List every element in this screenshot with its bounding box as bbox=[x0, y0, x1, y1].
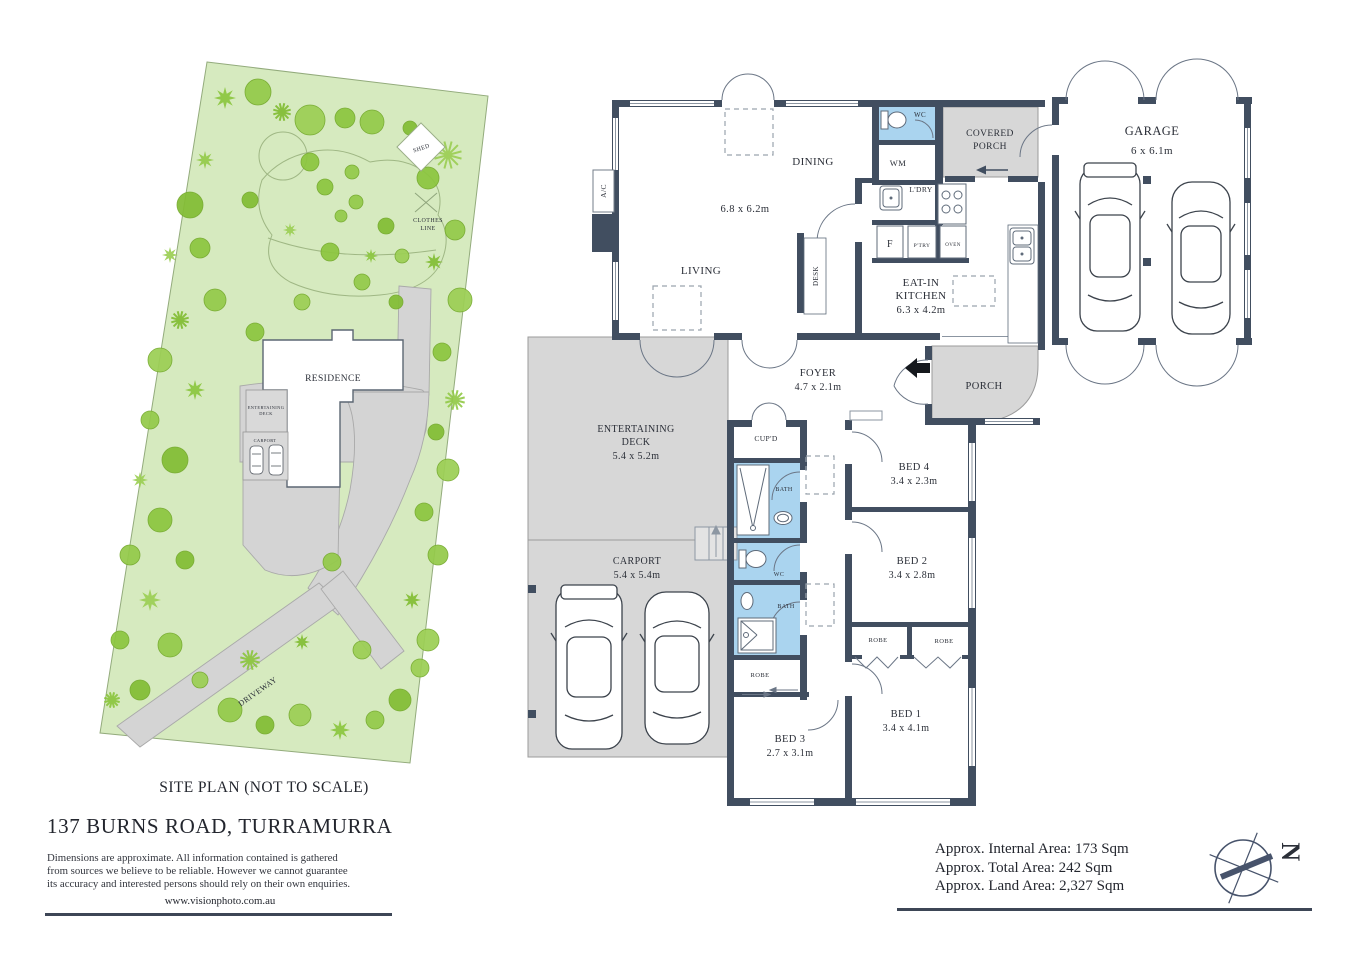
bed1-label: BED 1 bbox=[891, 709, 922, 720]
tree-icon bbox=[185, 380, 205, 400]
bed3-dim: 2.7 x 3.1m bbox=[767, 748, 814, 759]
right-divider bbox=[897, 908, 1312, 911]
tree-icon bbox=[411, 659, 429, 677]
bed4-dim: 3.4 x 2.3m bbox=[891, 476, 938, 487]
garage-dim: 6 x 6.1m bbox=[1131, 145, 1173, 157]
bath1-label: BATH bbox=[775, 487, 793, 493]
dining-label: DINING bbox=[792, 156, 834, 168]
tree-icon bbox=[415, 503, 433, 521]
tree-icon bbox=[130, 680, 150, 700]
foyer-label: FOYER bbox=[800, 368, 836, 379]
cooktop-icon bbox=[938, 184, 966, 224]
area-summary: Approx. Internal Area: 173 Sqm Approx. T… bbox=[935, 840, 1129, 896]
tree-icon bbox=[176, 551, 194, 569]
bed4-window-box bbox=[850, 411, 882, 420]
tree-icon bbox=[323, 553, 341, 571]
tree-icon bbox=[433, 343, 451, 361]
disclaimer-line3: its accuracy and interested persons shou… bbox=[47, 878, 393, 891]
bed3-label: BED 3 bbox=[775, 734, 806, 745]
internal-area: Approx. Internal Area: 173 Sqm bbox=[935, 840, 1129, 859]
tree-icon bbox=[345, 165, 359, 179]
disclaimer-line1: Dimensions are approximate. All informat… bbox=[47, 852, 393, 865]
tree-icon bbox=[428, 545, 448, 565]
wc-mid-label: WC bbox=[774, 572, 784, 578]
tree-icon bbox=[417, 629, 439, 651]
tree-icon bbox=[162, 247, 178, 263]
wm-label: WM bbox=[890, 158, 906, 168]
tree-icon bbox=[445, 220, 465, 240]
wc-top-label: WC bbox=[914, 111, 926, 119]
tree-icon bbox=[321, 243, 339, 261]
tree-icon bbox=[196, 151, 214, 169]
tree-icon bbox=[317, 179, 333, 195]
site-plan: RESIDENCE ENTERTAINING DECK CARPORT SHED… bbox=[100, 62, 488, 763]
tree-icon bbox=[395, 249, 409, 263]
tree-icon bbox=[192, 672, 208, 688]
deck-label2: DECK bbox=[622, 437, 651, 448]
garage-label: GARAGE bbox=[1125, 124, 1179, 138]
tree-icon bbox=[158, 633, 182, 657]
compass: N bbox=[1195, 819, 1305, 917]
tree-icon bbox=[294, 294, 310, 310]
carport-label: CARPORT bbox=[613, 556, 661, 567]
compass-north-label: N bbox=[1276, 842, 1305, 861]
ac-label: A/C bbox=[599, 184, 608, 198]
toilet-icon bbox=[881, 111, 888, 129]
left-divider bbox=[45, 913, 392, 916]
tree-icon bbox=[294, 634, 310, 650]
total-area: Approx. Total Area: 242 Sqm bbox=[935, 859, 1129, 878]
tree-icon bbox=[177, 192, 203, 218]
ldry-label: L'DRY bbox=[909, 185, 933, 194]
foyer-dim: 4.7 x 2.1m bbox=[795, 382, 842, 393]
cupd-label: CUP'D bbox=[754, 434, 778, 443]
toilet2-icon bbox=[739, 550, 746, 568]
site-carport-label: CARPORT bbox=[254, 438, 277, 443]
car-carport-2 bbox=[640, 592, 714, 744]
tree-icon bbox=[246, 323, 264, 341]
tree-icon bbox=[353, 641, 371, 659]
living-label: LIVING bbox=[681, 265, 721, 277]
tree-icon bbox=[190, 238, 210, 258]
site-deck-label1: ENTERTAINING bbox=[248, 405, 285, 410]
tree-icon bbox=[242, 192, 258, 208]
tree-icon bbox=[378, 218, 394, 234]
basin2-icon bbox=[741, 593, 753, 610]
car-garage-2 bbox=[1167, 182, 1235, 334]
living-dining-dim: 6.8 x 6.2m bbox=[721, 204, 770, 215]
property-address: 137 BURNS ROAD, TURRAMURRA bbox=[47, 814, 392, 839]
tree-icon bbox=[139, 589, 161, 611]
car-garage-1 bbox=[1075, 163, 1145, 331]
tree-icon bbox=[335, 210, 347, 222]
clothes-line-label1: CLOTHES bbox=[413, 218, 443, 224]
tree-icon bbox=[428, 424, 444, 440]
floorplan-page: RESIDENCE ENTERTAINING DECK CARPORT SHED… bbox=[0, 0, 1358, 960]
kitchen-dim: 6.3 x 4.2m bbox=[897, 305, 946, 316]
robe-b-label: ROBE bbox=[935, 638, 954, 645]
ptry-label: P'TRY bbox=[914, 243, 931, 249]
bed2-label: BED 2 bbox=[897, 556, 928, 567]
robe-bed3-label: ROBE bbox=[751, 672, 770, 679]
oven-label: OVEN bbox=[945, 243, 961, 248]
tree-icon bbox=[283, 223, 297, 237]
tree-icon bbox=[295, 105, 325, 135]
clothes-line-label2: LINE bbox=[420, 226, 435, 232]
land-area: Approx. Land Area: 2,327 Sqm bbox=[935, 877, 1129, 896]
carport-dim: 5.4 x 5.4m bbox=[614, 570, 661, 581]
bed2-dim: 3.4 x 2.8m bbox=[889, 570, 936, 581]
tree-icon bbox=[148, 508, 172, 532]
bath2-label: BATH bbox=[777, 604, 795, 610]
tree-icon bbox=[204, 289, 226, 311]
fridge-label: F bbox=[887, 239, 893, 250]
pantry-box bbox=[908, 226, 936, 258]
site-plan-caption: SITE PLAN (NOT TO SCALE) bbox=[114, 779, 414, 797]
tree-icon bbox=[289, 704, 311, 726]
site-residence-label: RESIDENCE bbox=[305, 374, 361, 384]
tree-icon bbox=[141, 411, 159, 429]
covered-porch-label1: COVERED bbox=[966, 129, 1014, 139]
deck-label1: ENTERTAINING bbox=[597, 424, 674, 435]
robe-a-label: ROBE bbox=[869, 637, 888, 644]
car-carport-1 bbox=[551, 585, 627, 749]
kitchen-label1: EAT-IN bbox=[903, 277, 940, 289]
site-deck-label2: DECK bbox=[259, 411, 273, 416]
tree-icon bbox=[448, 288, 472, 312]
tree-icon bbox=[256, 716, 274, 734]
covered-porch-label2: PORCH bbox=[973, 142, 1007, 152]
tree-icon bbox=[111, 631, 129, 649]
tree-icon bbox=[389, 689, 411, 711]
tree-icon bbox=[349, 195, 363, 209]
tree-icon bbox=[403, 591, 421, 609]
bed4-label: BED 4 bbox=[899, 462, 930, 473]
tree-icon bbox=[330, 720, 350, 740]
bed1-dim: 3.4 x 4.1m bbox=[883, 723, 930, 734]
tree-icon bbox=[335, 108, 355, 128]
oven-box bbox=[940, 226, 966, 258]
tree-icon bbox=[214, 87, 236, 109]
tree-icon bbox=[120, 545, 140, 565]
disclaimer: Dimensions are approximate. All informat… bbox=[47, 852, 393, 892]
tree-icon bbox=[364, 249, 378, 263]
tree-icon bbox=[425, 253, 443, 271]
tree-icon bbox=[354, 274, 370, 290]
desk-label: DESK bbox=[812, 266, 820, 286]
floor-plan: A/C bbox=[528, 59, 1252, 806]
tree-icon bbox=[148, 348, 172, 372]
porch-label: PORCH bbox=[965, 381, 1002, 392]
tree-icon bbox=[301, 153, 319, 171]
tree-icon bbox=[437, 459, 459, 481]
tree-icon bbox=[366, 711, 384, 729]
deck-dim: 5.4 x 5.2m bbox=[613, 451, 660, 462]
tree-icon bbox=[389, 295, 403, 309]
tree-icon bbox=[245, 79, 271, 105]
tree-icon bbox=[162, 447, 188, 473]
disclaimer-line2: from sources we believe to be reliable. … bbox=[47, 865, 393, 878]
ac-unit: A/C bbox=[593, 170, 614, 212]
kitchen-label2: KITCHEN bbox=[895, 290, 946, 302]
tree-icon bbox=[132, 472, 148, 488]
website-url: www.visionphoto.com.au bbox=[47, 895, 393, 907]
tree-icon bbox=[360, 110, 384, 134]
